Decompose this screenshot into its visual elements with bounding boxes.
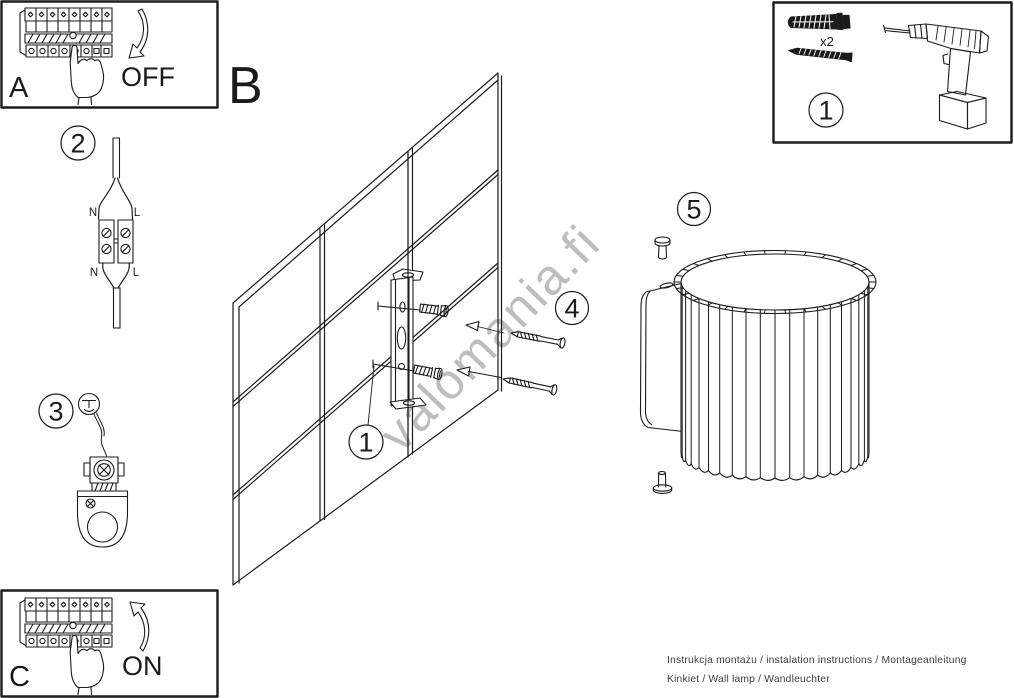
off-label: OFF: [121, 62, 175, 92]
wire-label-l-top: L: [134, 207, 141, 219]
step-4-number: 4: [564, 294, 579, 324]
step-3-number: 3: [48, 397, 63, 427]
manual-illustration: valomania.fi: [0, 0, 1014, 698]
section-c-label: C: [9, 661, 30, 693]
section-a-label: A: [9, 72, 29, 104]
wire-label-n-bottom: N: [90, 267, 98, 279]
step-5-number: 5: [686, 195, 701, 225]
footer-line-2: Kinkiet / Wall lamp / Wandleuchter: [667, 674, 830, 685]
instruction-sheet: valomania.fi: [0, 0, 1014, 698]
footer-line-1: Instrukcja montażu / instalation instruc…: [667, 655, 967, 666]
wall-plug-qty-label: x2: [820, 34, 834, 49]
step-1-number: 1: [358, 428, 373, 458]
wire-label-n-top: N: [89, 207, 97, 219]
on-label: ON: [122, 651, 163, 681]
tools-badge-number: 1: [818, 96, 833, 126]
step-2-number: 2: [70, 129, 85, 159]
lamp-shade-drawing: [674, 251, 876, 481]
section-b-label: B: [228, 57, 263, 115]
wire-label-l-bottom: L: [133, 267, 140, 279]
